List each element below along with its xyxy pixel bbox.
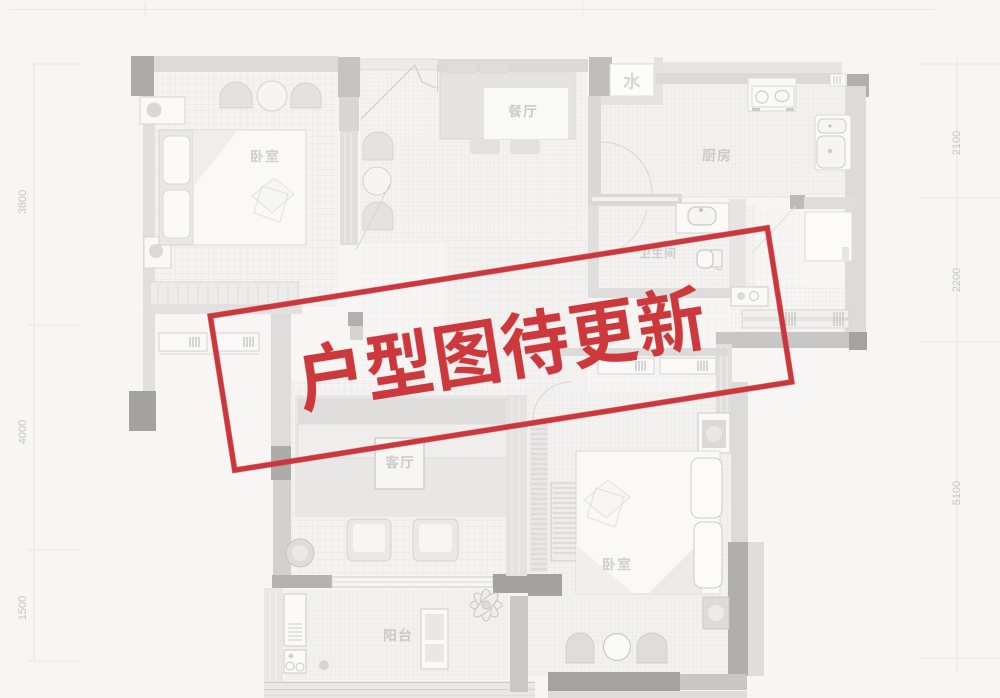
svg-text:2200: 2200 (951, 268, 963, 292)
svg-text:4000: 4000 (17, 420, 29, 444)
svg-text:5100: 5100 (951, 481, 963, 505)
svg-text:3800: 3800 (17, 190, 29, 214)
svg-text:2100: 2100 (951, 131, 963, 155)
svg-text:1500: 1500 (17, 596, 29, 620)
